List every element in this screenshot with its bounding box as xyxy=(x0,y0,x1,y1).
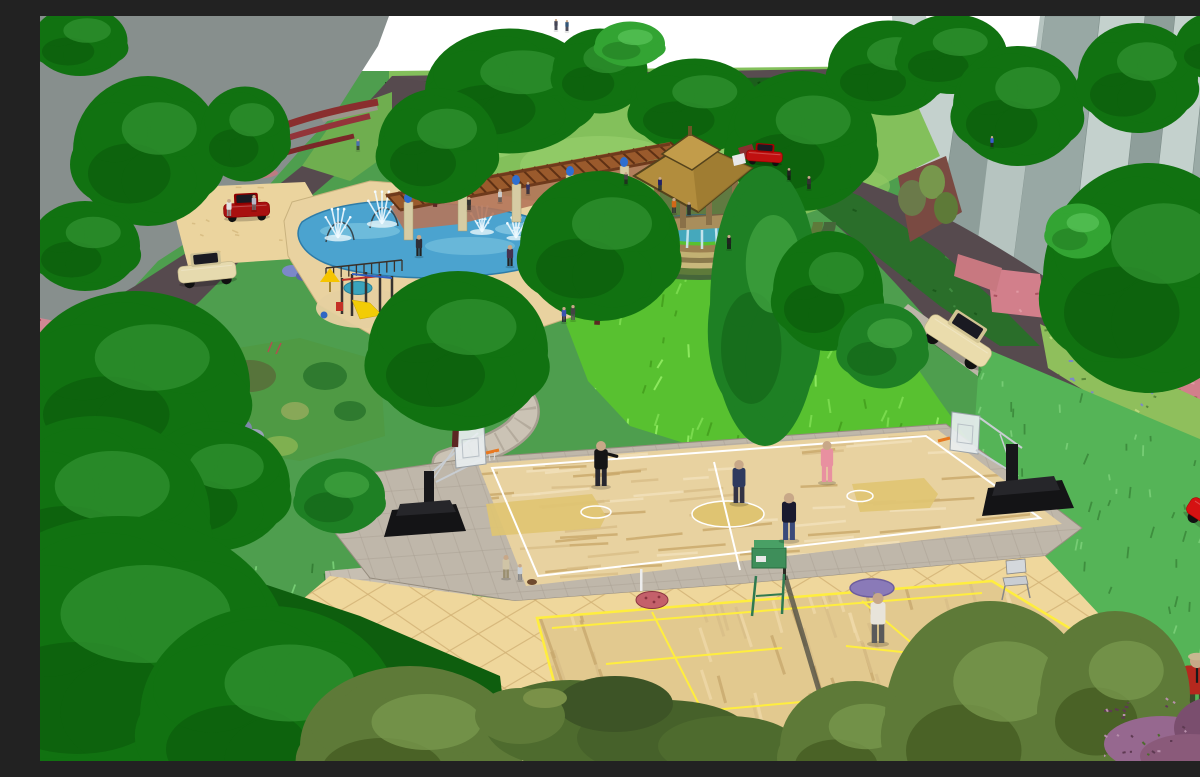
white-post xyxy=(640,569,643,591)
red-basket xyxy=(636,592,668,609)
folding-chair xyxy=(1003,576,1028,586)
landscape-render: Residential park landscape 3D rendering xyxy=(40,16,1200,761)
pillar-lamp xyxy=(620,157,628,167)
furniture-p xyxy=(1006,559,1026,574)
furniture-r xyxy=(756,556,766,562)
gazebo-l xyxy=(687,228,688,248)
furniture-e xyxy=(653,601,656,604)
furniture-e xyxy=(658,596,661,599)
play-panel xyxy=(336,302,343,311)
kiddie-pool xyxy=(344,282,372,295)
gazebo-finial xyxy=(688,126,692,136)
backboard-left xyxy=(454,426,486,468)
pillar-lamp xyxy=(566,166,574,176)
bush xyxy=(303,362,347,390)
furniture-e xyxy=(645,597,648,600)
play-ball xyxy=(321,312,328,319)
backboard-right xyxy=(950,412,980,454)
pool-e xyxy=(425,237,515,255)
key-right xyxy=(852,478,938,512)
bush xyxy=(281,402,309,420)
bush xyxy=(334,401,366,421)
foreground-e xyxy=(523,688,567,708)
scene-canvas xyxy=(40,16,1200,761)
pergola-pillar xyxy=(404,202,413,240)
pillar-lamp xyxy=(512,175,520,185)
pergola-pillar xyxy=(512,184,521,222)
hedges-e xyxy=(934,192,958,224)
shrub-mass xyxy=(557,676,673,732)
dog xyxy=(527,579,537,585)
purple-umbrella xyxy=(850,579,894,597)
